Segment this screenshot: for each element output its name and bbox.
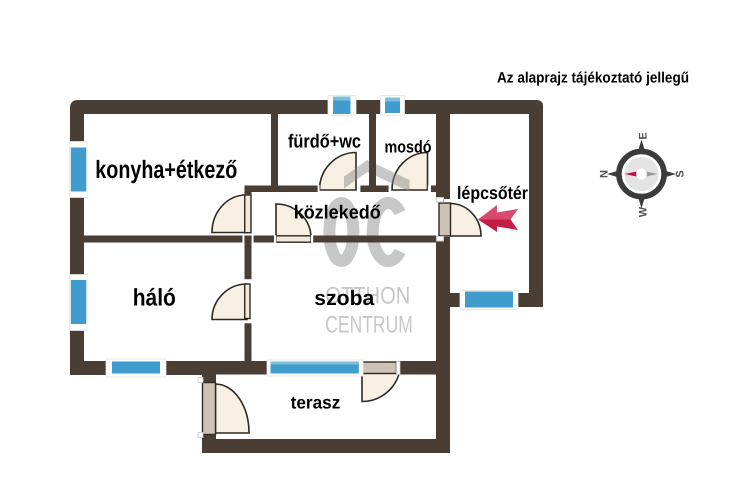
svg-text:W: W [638, 206, 650, 217]
svg-text:S: S [675, 170, 687, 177]
svg-text:terasz: terasz [291, 393, 341, 413]
svg-text:konyha+étkező: konyha+étkező [95, 156, 237, 184]
svg-text:E: E [638, 132, 650, 139]
svg-text:Az alaprajz tájékoztató jelleg: Az alaprajz tájékoztató jellegű [497, 70, 689, 87]
svg-text:szoba: szoba [314, 287, 374, 310]
svg-text:lépcsőtér: lépcsőtér [457, 183, 528, 203]
svg-text:fürdő+wc: fürdő+wc [288, 132, 361, 153]
svg-text:N: N [599, 170, 611, 178]
svg-text:közlekedő: közlekedő [294, 202, 381, 223]
svg-text:CENTRUM: CENTRUM [325, 312, 413, 339]
svg-text:mosdó: mosdó [385, 138, 432, 157]
svg-text:háló: háló [133, 285, 176, 312]
